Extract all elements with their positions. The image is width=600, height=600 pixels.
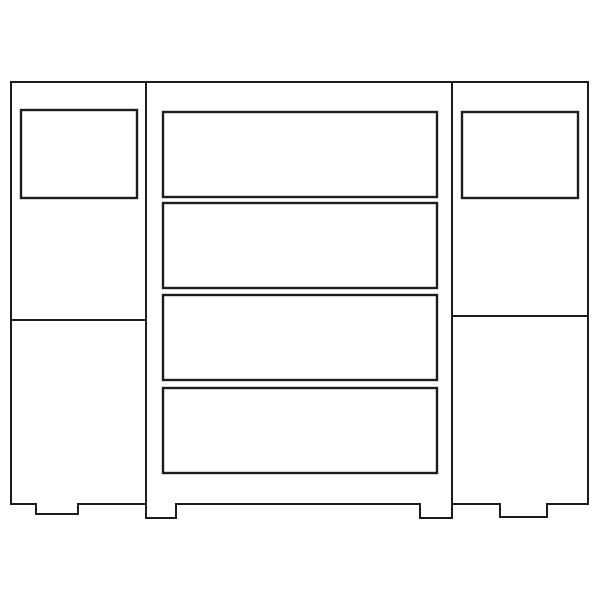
left-door-panel [21, 110, 137, 198]
drawer-4 [163, 388, 437, 473]
drawer-2 [163, 203, 437, 288]
drawer-1 [163, 112, 437, 197]
drawing-canvas [0, 0, 600, 600]
right-door-panel [462, 112, 578, 198]
drawer-3 [163, 295, 437, 380]
wall-unit-drawing [0, 0, 600, 600]
